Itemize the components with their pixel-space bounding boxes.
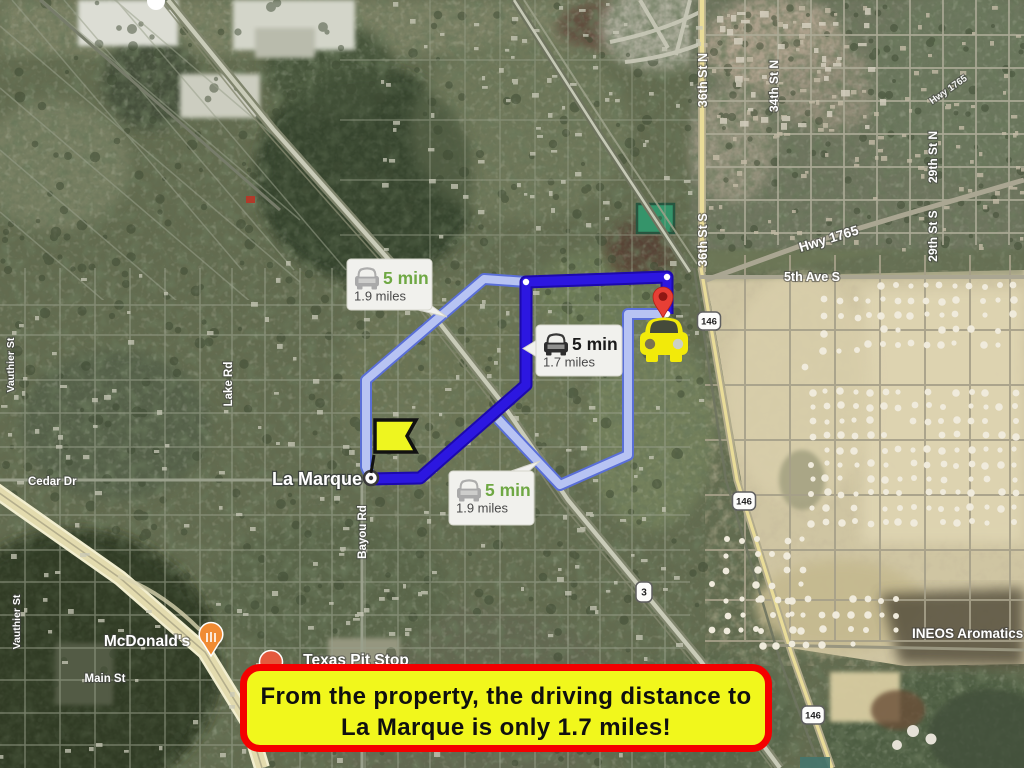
svg-text:1.9 miles: 1.9 miles — [354, 289, 407, 304]
svg-text:146: 146 — [736, 496, 752, 507]
svg-text:La Marque: La Marque — [272, 469, 362, 489]
svg-text:5 min: 5 min — [383, 268, 429, 288]
svg-text:34th St N: 34th St N — [767, 60, 781, 112]
svg-text:Vauthier St: Vauthier St — [11, 594, 23, 649]
svg-text:5 min: 5 min — [485, 480, 531, 500]
svg-text:36th St S: 36th St S — [696, 213, 710, 267]
svg-text:INEOS Aromatics: INEOS Aromatics — [912, 626, 1023, 641]
svg-text:Lake Rd: Lake Rd — [223, 362, 235, 407]
svg-text:29th St S: 29th St S — [926, 210, 940, 261]
svg-text:29th St N: 29th St N — [926, 131, 940, 183]
svg-text:1.9 miles: 1.9 miles — [456, 501, 509, 516]
svg-text:Main St: Main St — [85, 673, 126, 685]
svg-text:36th St N: 36th St N — [696, 53, 710, 107]
svg-text:McDonald's: McDonald's — [104, 633, 190, 650]
svg-text:3: 3 — [641, 587, 647, 598]
svg-text:146: 146 — [805, 710, 821, 721]
svg-text:Cedar Dr: Cedar Dr — [28, 476, 77, 488]
svg-text:5 min: 5 min — [572, 334, 618, 354]
svg-text:1.7 miles: 1.7 miles — [543, 355, 596, 370]
svg-text:146: 146 — [701, 316, 717, 327]
svg-text:Bayou Rd: Bayou Rd — [357, 505, 369, 559]
svg-text:5th Ave S: 5th Ave S — [784, 270, 840, 284]
svg-text:Vauthier St: Vauthier St — [5, 337, 17, 392]
